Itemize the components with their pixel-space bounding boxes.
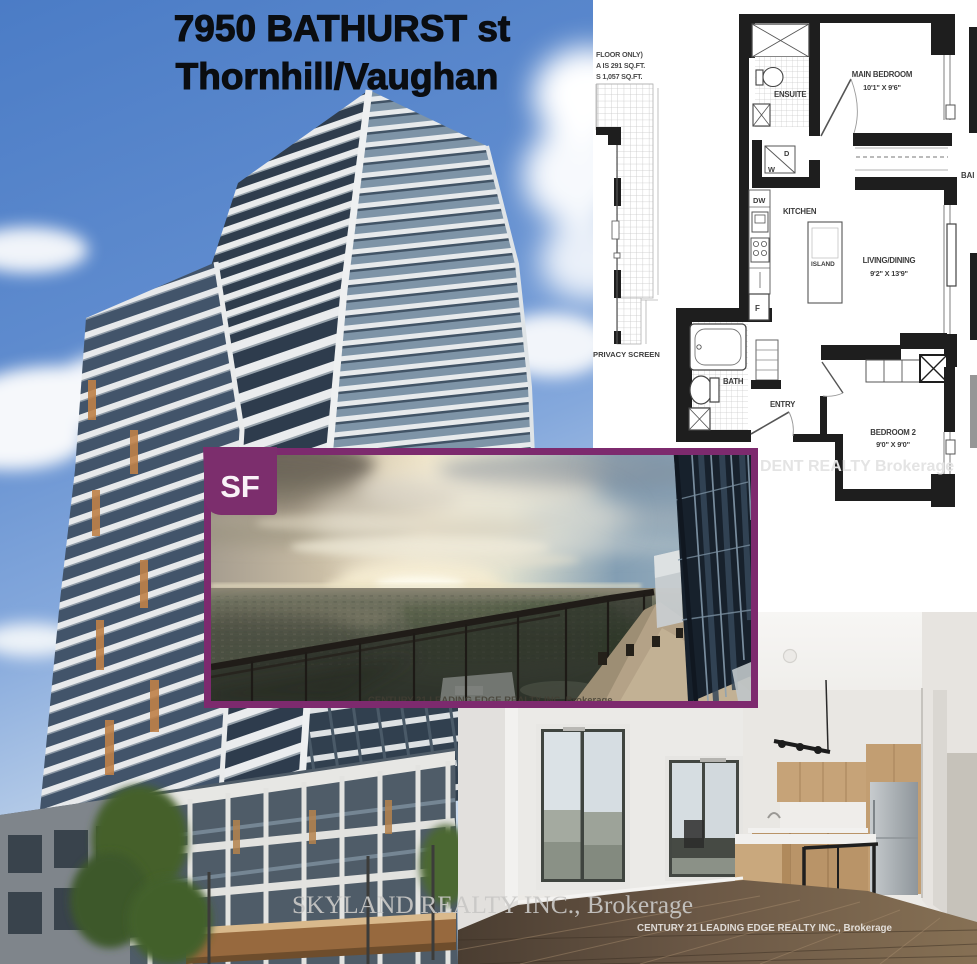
svg-text:LIVING/DINING: LIVING/DINING bbox=[863, 256, 916, 265]
svg-text:ISLAND: ISLAND bbox=[811, 261, 835, 268]
svg-text:CENTURY 21 LEADING EDGE REALTY: CENTURY 21 LEADING EDGE REALTY INC., Bro… bbox=[637, 923, 893, 934]
svg-text:F: F bbox=[755, 304, 760, 313]
svg-text:PRIVACY SCREEN: PRIVACY SCREEN bbox=[593, 350, 660, 359]
svg-text:7950 BATHURST st: 7950 BATHURST st bbox=[174, 8, 511, 49]
svg-text:SF: SF bbox=[220, 469, 260, 504]
svg-text:Thornhill/Vaughan: Thornhill/Vaughan bbox=[176, 56, 499, 97]
svg-text:BEDROOM 2: BEDROOM 2 bbox=[870, 428, 916, 437]
svg-text:KITCHEN: KITCHEN bbox=[783, 207, 817, 216]
svg-text:9'0" X 9'0": 9'0" X 9'0" bbox=[876, 440, 910, 449]
svg-text:DENT REALTY Brokerage: DENT REALTY Brokerage bbox=[760, 458, 954, 475]
svg-text:MAIN BEDROOM: MAIN BEDROOM bbox=[852, 70, 912, 79]
svg-text:10'1" X 9'6": 10'1" X 9'6" bbox=[863, 83, 901, 92]
svg-text:S 1,057 SQ.FT.: S 1,057 SQ.FT. bbox=[596, 72, 643, 81]
svg-text:SKYLAND REALTY INC., Brokerage: SKYLAND REALTY INC., Brokerage bbox=[292, 890, 693, 919]
svg-text:D: D bbox=[784, 149, 790, 158]
svg-text:BAI: BAI bbox=[961, 171, 974, 180]
svg-text:ENTRY: ENTRY bbox=[770, 400, 796, 409]
svg-text:ENSUITE: ENSUITE bbox=[774, 90, 806, 99]
svg-text:W: W bbox=[768, 165, 775, 174]
svg-text:A IS 291 SQ.FT.: A IS 291 SQ.FT. bbox=[596, 61, 645, 70]
svg-text:FLOOR ONLY): FLOOR ONLY) bbox=[596, 50, 643, 59]
svg-text:9'2" X 13'9": 9'2" X 13'9" bbox=[870, 269, 908, 278]
svg-text:DW: DW bbox=[753, 196, 765, 205]
svg-text:BATH: BATH bbox=[723, 377, 744, 386]
